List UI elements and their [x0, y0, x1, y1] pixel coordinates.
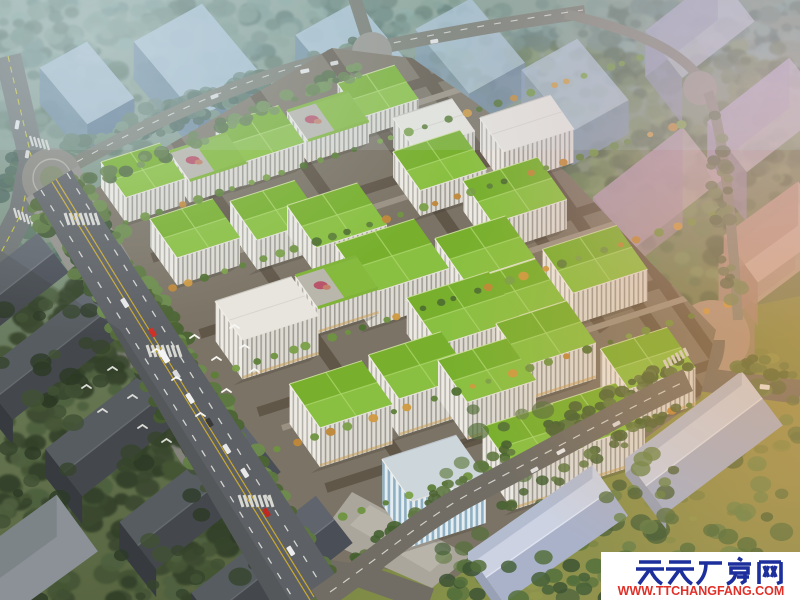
svg-text:WWW.TTCHANGFANG.COM: WWW.TTCHANGFANG.COM	[618, 584, 785, 598]
